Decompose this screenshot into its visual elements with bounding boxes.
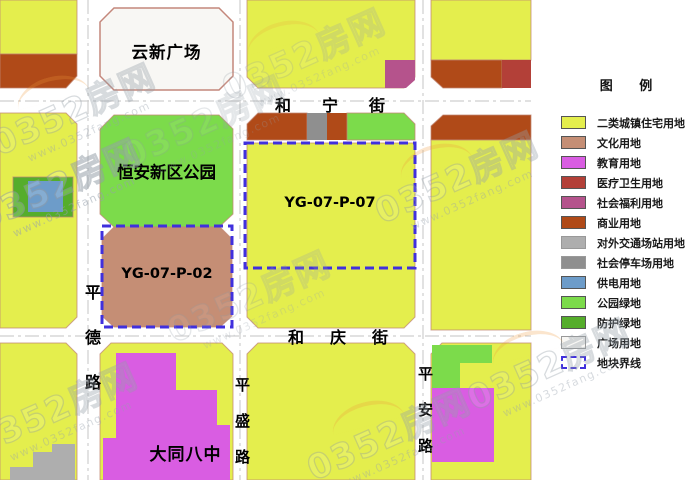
label-road-pingan: 平安路 bbox=[415, 366, 436, 474]
legend-item-parking: 社会停车场用地 bbox=[545, 256, 700, 269]
legend-label: 社会福利用地 bbox=[597, 195, 663, 211]
block-education-small bbox=[432, 388, 494, 462]
label-hengan-park: 恒安新区公园 bbox=[100, 159, 233, 183]
block-residential-topleft bbox=[0, 0, 77, 54]
planning-map-page: 云新广场 恒安新区公园 YG-07-P-02 YG-07-P-07 大同八中 和… bbox=[0, 0, 700, 480]
block-welfare bbox=[385, 60, 415, 88]
legend-swatch-residential bbox=[561, 116, 586, 129]
legend-label: 广场用地 bbox=[597, 335, 641, 351]
legend-swatch-power bbox=[561, 276, 586, 289]
legend-swatch-education bbox=[561, 156, 586, 169]
legend-swatch-park-green bbox=[561, 296, 586, 309]
legend-swatch-plaza bbox=[561, 336, 586, 349]
legend-item-residential: 二类城镇住宅用地 bbox=[545, 116, 700, 129]
block-residential-midleft bbox=[0, 113, 77, 328]
legend-swatch-commercial bbox=[561, 216, 586, 229]
legend-label: 防护绿地 bbox=[597, 315, 641, 331]
legend-label: 供电用地 bbox=[597, 275, 641, 291]
legend-label: 地块界线 bbox=[597, 355, 641, 371]
legend-item-welfare: 社会福利用地 bbox=[545, 196, 700, 209]
legend-item-plot-boundary: 地块界线 bbox=[545, 356, 700, 369]
block-commercial-topleft bbox=[0, 54, 77, 88]
label-yunxin-plaza: 云新广场 bbox=[100, 39, 233, 63]
legend-swatch-plot-boundary bbox=[561, 356, 586, 369]
block-commercial-strip-east bbox=[327, 113, 347, 140]
block-green-strip bbox=[347, 113, 415, 140]
legend-label: 社会停车场用地 bbox=[597, 255, 674, 271]
legend-item-plaza: 广场用地 bbox=[545, 336, 700, 349]
block-power-substation bbox=[28, 181, 63, 212]
block-residential-midright bbox=[431, 140, 531, 330]
label-street-hening: 和宁街 bbox=[275, 92, 416, 116]
block-parking-strip bbox=[307, 113, 327, 140]
block-residential-plot-p07 bbox=[247, 143, 415, 328]
legend-label: 医疗卫生用地 bbox=[597, 175, 663, 191]
legend-swatch-culture bbox=[561, 136, 586, 149]
legend-item-power: 供电用地 bbox=[545, 276, 700, 289]
legend-swatch-medical bbox=[561, 176, 586, 189]
legend-label: 对外交通场站用地 bbox=[597, 235, 685, 251]
block-residential-topright bbox=[431, 0, 531, 60]
label-datong-school: 大同八中 bbox=[133, 440, 238, 465]
legend-label: 公园绿地 bbox=[597, 295, 641, 311]
legend-swatch-welfare bbox=[561, 196, 586, 209]
legend-label: 商业用地 bbox=[597, 215, 641, 231]
legend-item-transport-station: 对外交通场站用地 bbox=[545, 236, 700, 249]
label-road-pingsheng: 平盛路 bbox=[232, 377, 253, 480]
legend-item-medical: 医疗卫生用地 bbox=[545, 176, 700, 189]
legend-item-culture: 文化用地 bbox=[545, 136, 700, 149]
legend-label: 文化用地 bbox=[597, 135, 641, 151]
label-plot-p02: YG-07-P-02 bbox=[102, 266, 232, 282]
legend-item-park-green: 公园绿地 bbox=[545, 296, 700, 309]
block-medical bbox=[502, 60, 531, 88]
legend-item-education: 教育用地 bbox=[545, 156, 700, 169]
legend-title: 图 例 bbox=[563, 75, 700, 94]
block-commercial-strip-right bbox=[431, 115, 531, 140]
legend-swatch-transport bbox=[561, 236, 586, 249]
legend-rows: 二类城镇住宅用地 文化用地 教育用地 医疗卫生用地 社会福利用地 商业用地 bbox=[545, 116, 700, 369]
legend-item-commercial: 商业用地 bbox=[545, 216, 700, 229]
label-plot-p07: YG-07-P-07 bbox=[245, 195, 415, 211]
label-road-pingde: 平德路 bbox=[79, 284, 103, 419]
legend-swatch-parking bbox=[561, 256, 586, 269]
block-residential-bottommid bbox=[247, 343, 415, 480]
legend-label: 二类城镇住宅用地 bbox=[597, 115, 685, 131]
label-street-heqing: 和庆街 bbox=[288, 324, 414, 348]
block-commercial-strip-west bbox=[247, 113, 307, 140]
block-commercial-topright bbox=[431, 60, 502, 88]
legend-label: 教育用地 bbox=[597, 155, 641, 171]
legend-panel: 图 例 二类城镇住宅用地 文化用地 教育用地 医疗卫生用地 社会福利用地 bbox=[545, 60, 700, 376]
legend-item-protective-green: 防护绿地 bbox=[545, 316, 700, 329]
legend-swatch-protective-green bbox=[561, 316, 586, 329]
